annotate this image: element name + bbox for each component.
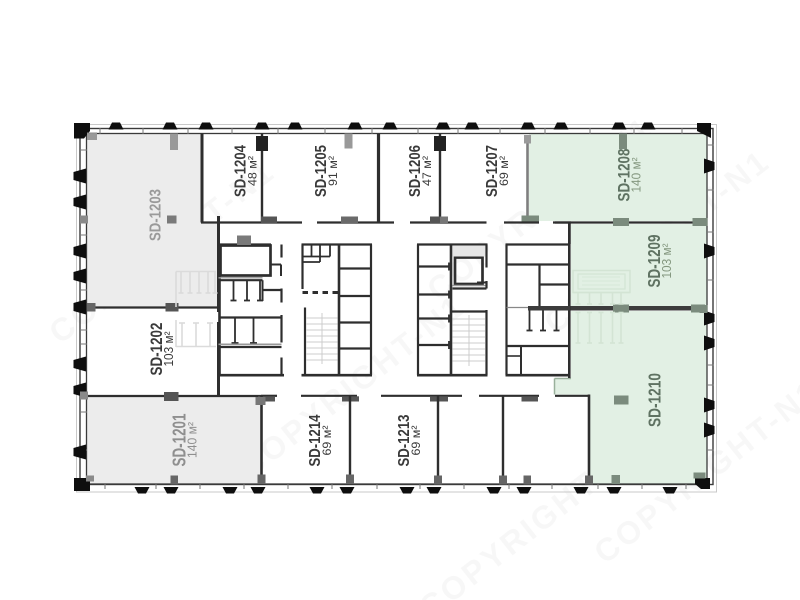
svg-text:91 м²: 91 м² xyxy=(326,156,340,186)
svg-text:140 м²: 140 м² xyxy=(185,421,200,458)
svg-text:103 м²: 103 м² xyxy=(162,332,176,367)
svg-text:SD-1203: SD-1203 xyxy=(148,189,165,241)
svg-text:47 м²: 47 м² xyxy=(420,156,434,186)
svg-text:SD-1210: SD-1210 xyxy=(645,373,665,427)
svg-text:103 м²: 103 м² xyxy=(660,244,674,279)
svg-text:48 м²: 48 м² xyxy=(246,156,260,186)
svg-text:69 м²: 69 м² xyxy=(409,426,423,456)
svg-text:140 м²: 140 м² xyxy=(630,158,644,193)
svg-text:69 м²: 69 м² xyxy=(497,156,511,186)
svg-text:69 м²: 69 м² xyxy=(320,426,334,456)
